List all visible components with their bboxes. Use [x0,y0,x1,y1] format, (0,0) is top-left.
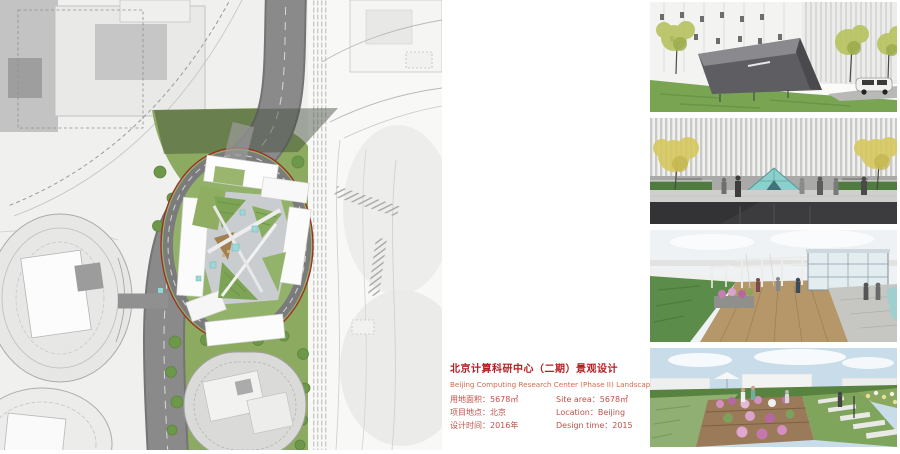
field-site-area-zh: 用地面积：5678㎡ [450,395,556,405]
project-fields: 用地面积：5678㎡ Site area：5678㎡ 项目地点：北京 Locat… [450,395,655,431]
dark-foreground-pavement [650,202,897,224]
planter-flowers [714,288,754,308]
field-location-en: Location：Beijing [556,408,655,418]
render-roof-garden-flower-view [650,348,897,447]
field-design-time-zh: 设计时间：2016年 [450,421,556,431]
render-entrance-signage-view [650,2,897,112]
context-oval-building-south [184,352,306,450]
site-master-plan [0,0,442,450]
site-plan-drawing [0,0,442,450]
plaza [650,190,897,203]
project-title-en: Beijing Computing Research Center (Phase… [450,380,655,389]
presentation-board: 北京计算科研中心（二期）景观设计 Beijing Computing Resea… [0,0,900,450]
project-info-block: 北京计算科研中心（二期）景观设计 Beijing Computing Resea… [450,364,655,431]
render-roof-terrace-pergola-view [650,230,897,342]
render-facade-glass-entrance-view [650,118,897,224]
field-site-area-en: Site area：5678㎡ [556,395,655,405]
render-column [650,2,897,453]
field-location-zh: 项目地点：北京 [450,408,556,418]
project-title-zh: 北京计算科研中心（二期）景观设计 [450,364,655,377]
field-design-time-en: Design time：2015 [556,421,655,431]
flower-terrace [696,396,814,447]
